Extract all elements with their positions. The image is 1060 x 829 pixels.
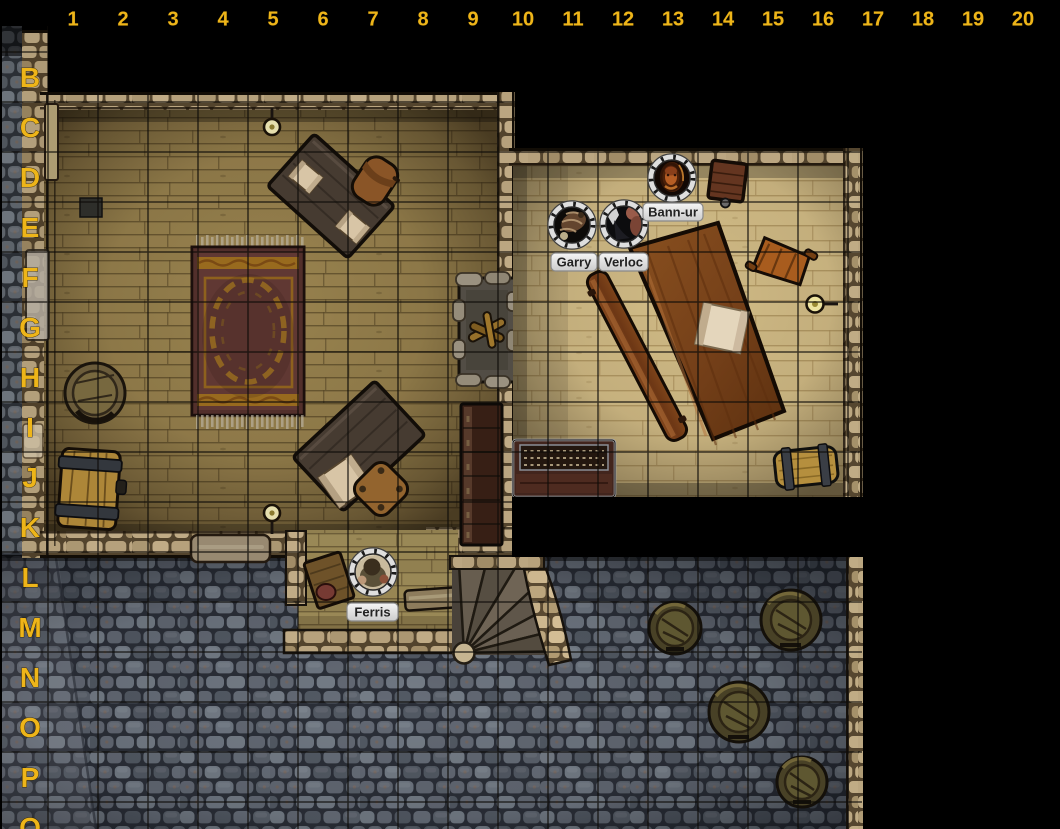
svg-text:I: I [26,412,34,443]
svg-text:C: C [20,112,40,143]
svg-text:19: 19 [962,9,984,31]
svg-text:G: G [19,312,41,343]
svg-text:7: 7 [367,9,378,31]
svg-text:O: O [19,712,41,743]
svg-text:14: 14 [712,9,735,31]
svg-text:5: 5 [267,9,278,31]
svg-text:M: M [18,612,41,643]
svg-text:P: P [21,762,40,793]
svg-text:Ferris: Ferris [354,605,390,620]
svg-text:Garry: Garry [557,255,592,270]
svg-text:Q: Q [19,812,41,829]
svg-text:13: 13 [662,9,684,31]
svg-text:17: 17 [862,9,884,31]
svg-text:18: 18 [912,9,934,31]
svg-text:F: F [21,262,38,293]
svg-text:1: 1 [67,9,78,31]
svg-text:B: B [20,62,40,93]
svg-text:K: K [20,512,40,543]
svg-text:L: L [21,562,38,593]
svg-text:Verloc: Verloc [604,255,643,270]
svg-text:J: J [22,462,38,493]
svg-text:H: H [20,362,40,393]
svg-text:20: 20 [1012,9,1034,31]
svg-text:D: D [20,162,40,193]
svg-text:16: 16 [812,9,834,31]
svg-text:3: 3 [167,9,178,31]
svg-text:15: 15 [762,9,784,31]
svg-text:N: N [20,662,40,693]
svg-text:6: 6 [317,9,328,31]
svg-text:4: 4 [217,9,229,31]
svg-text:2: 2 [117,9,128,31]
svg-text:10: 10 [512,9,534,31]
svg-text:E: E [21,212,40,243]
svg-text:12: 12 [612,9,634,31]
svg-text:Bann-ur: Bann-ur [648,205,698,220]
svg-text:11: 11 [562,9,583,31]
svg-text:9: 9 [467,9,478,31]
svg-text:8: 8 [417,9,428,31]
